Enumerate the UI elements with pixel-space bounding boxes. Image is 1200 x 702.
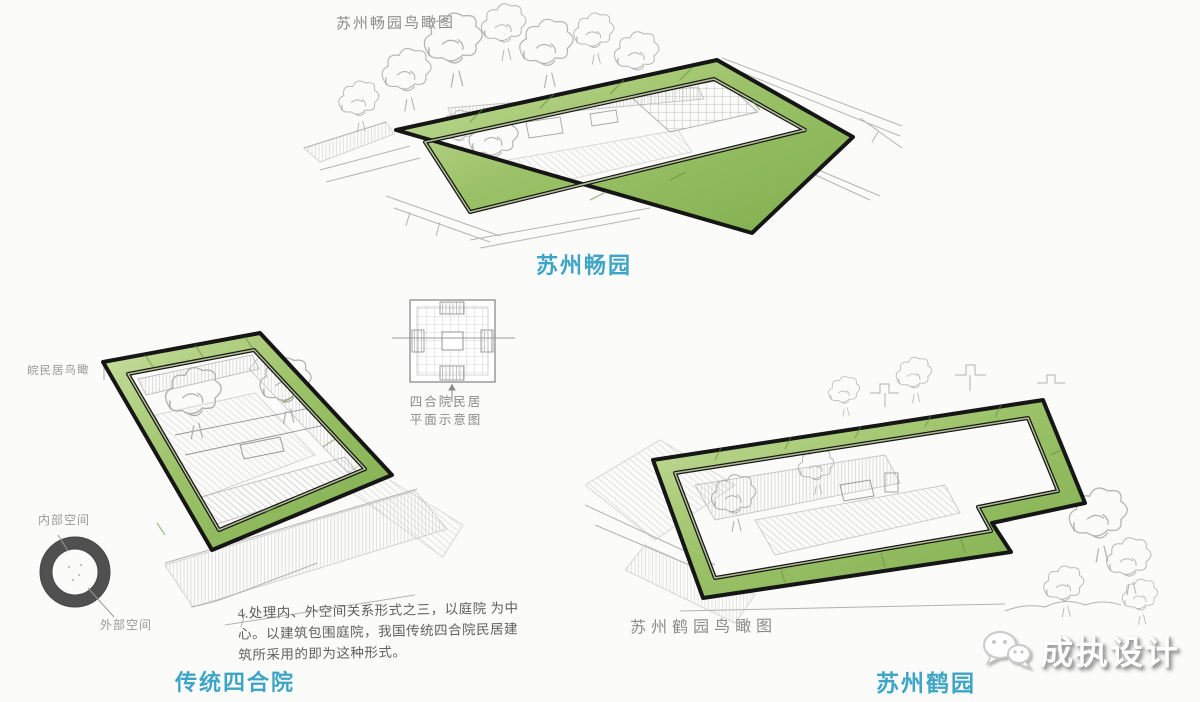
wechat-icon — [982, 629, 1032, 671]
heyuan-caption: 苏州鹤园 — [876, 664, 976, 698]
siheyuan-plan-diagram — [392, 300, 515, 402]
changyuan-caption: 苏州畅园 — [536, 248, 632, 280]
brand-name: 成执设计 — [1040, 626, 1180, 674]
outer-space-label: 外部空间 — [100, 616, 152, 633]
siheyuan-caption: 传统四合院 — [175, 665, 295, 697]
space-relation-diagram — [46, 535, 114, 617]
page: { "colors": { "background": "#fbfbf9", "… — [0, 0, 1200, 702]
inner-space-label: 内部空间 — [38, 511, 90, 528]
note-paragraph: 4.处理内、外空间关系形式之三，以庭院 为中 心。以建筑包围庭院，我国传统四合院… — [237, 597, 523, 665]
heyuan-sketch-label: 苏州鹤园鸟瞰图 — [630, 612, 777, 638]
plan-caption-line2: 平面示意图 — [398, 409, 494, 428]
changyuan-birdseye-sketch — [290, 0, 905, 260]
brand-watermark: 成执设计 — [982, 626, 1180, 674]
plan-caption-line1: 四合院民居 — [398, 391, 494, 410]
heyuan-birdseye-sketch — [585, 355, 1170, 645]
